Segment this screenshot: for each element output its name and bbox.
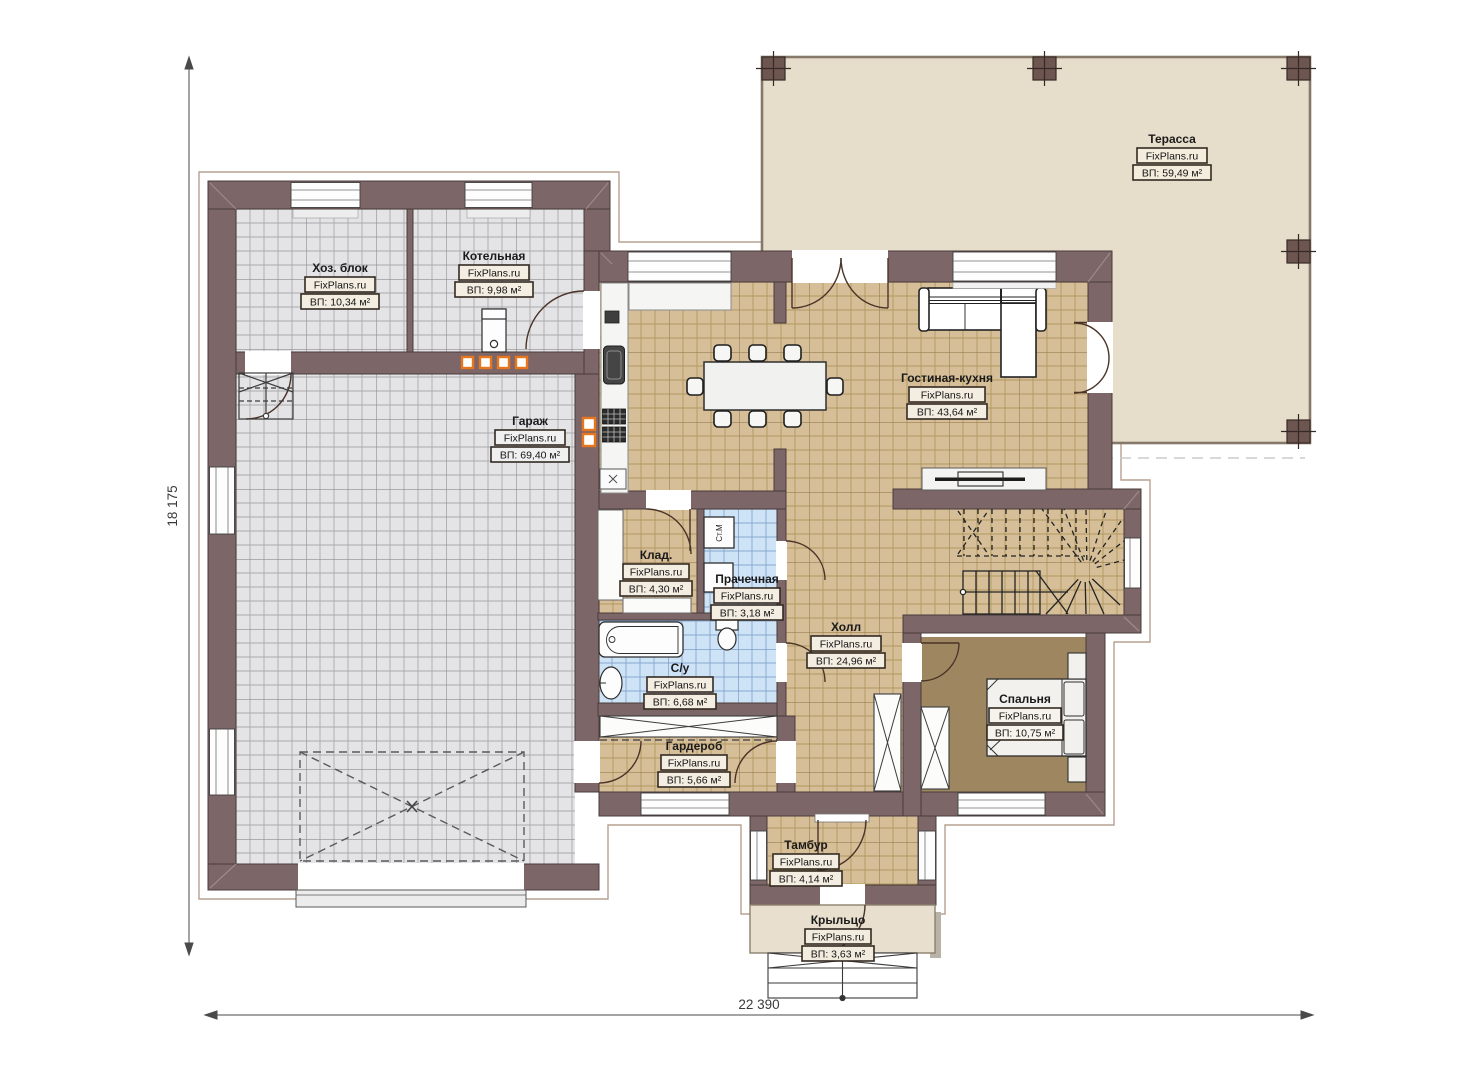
svg-text:Прачечная: Прачечная — [715, 572, 779, 586]
svg-text:ВП: 3,63 м²: ВП: 3,63 м² — [811, 949, 866, 961]
svg-text:ВП: 10,75 м²: ВП: 10,75 м² — [995, 728, 1056, 740]
svg-text:Спальня: Спальня — [999, 692, 1051, 706]
svg-text:Гараж: Гараж — [512, 414, 548, 428]
svg-text:FixPlans.ru: FixPlans.ru — [314, 280, 367, 292]
svg-text:FixPlans.ru: FixPlans.ru — [668, 758, 721, 770]
svg-text:Гостиная-кухня: Гостиная-кухня — [901, 371, 993, 385]
svg-text:ВП: 4,30 м²: ВП: 4,30 м² — [629, 584, 684, 596]
svg-text:FixPlans.ru: FixPlans.ru — [921, 390, 974, 402]
svg-text:ВП: 4,14 м²: ВП: 4,14 м² — [779, 874, 834, 886]
svg-text:18 175: 18 175 — [165, 485, 180, 526]
svg-text:FixPlans.ru: FixPlans.ru — [812, 932, 865, 944]
svg-text:ВП: 6,68 м²: ВП: 6,68 м² — [653, 697, 708, 709]
svg-text:Хоз. блок: Хоз. блок — [312, 261, 369, 275]
svg-text:ВП: 5,66 м²: ВП: 5,66 м² — [667, 775, 722, 787]
svg-text:С/у: С/у — [671, 661, 690, 675]
svg-text:ВП: 10,34 м²: ВП: 10,34 м² — [310, 297, 371, 309]
svg-text:FixPlans.ru: FixPlans.ru — [820, 639, 873, 651]
svg-text:22 390: 22 390 — [738, 997, 779, 1012]
svg-text:FixPlans.ru: FixPlans.ru — [1146, 151, 1199, 163]
svg-text:ВП: 3,18 м²: ВП: 3,18 м² — [720, 608, 775, 620]
svg-text:FixPlans.ru: FixPlans.ru — [630, 567, 683, 579]
svg-text:FixPlans.ru: FixPlans.ru — [721, 591, 774, 603]
svg-text:ВП: 59,49 м²: ВП: 59,49 м² — [1142, 168, 1203, 180]
svg-text:FixPlans.ru: FixPlans.ru — [780, 857, 833, 869]
svg-text:FixPlans.ru: FixPlans.ru — [468, 268, 521, 280]
svg-text:FixPlans.ru: FixPlans.ru — [504, 433, 557, 445]
svg-text:ВП: 24,96 м²: ВП: 24,96 м² — [816, 656, 877, 668]
svg-text:Гардероб: Гардероб — [666, 739, 723, 753]
svg-text:Тамбур: Тамбур — [784, 838, 828, 852]
svg-text:ВП: 69,40 м²: ВП: 69,40 м² — [500, 450, 561, 462]
svg-text:FixPlans.ru: FixPlans.ru — [654, 680, 707, 692]
svg-text:Ст.М: Ст.М — [715, 524, 724, 542]
svg-text:ВП: 43,64 м²: ВП: 43,64 м² — [917, 407, 978, 419]
svg-text:Котельная: Котельная — [463, 249, 526, 263]
svg-text:Холл: Холл — [831, 620, 861, 634]
svg-text:Крыльцо: Крыльцо — [811, 913, 866, 927]
svg-text:FixPlans.ru: FixPlans.ru — [999, 711, 1052, 723]
svg-text:ВП: 9,98 м²: ВП: 9,98 м² — [467, 285, 522, 297]
svg-text:Терасса: Терасса — [1148, 132, 1196, 146]
svg-text:Клад.: Клад. — [640, 548, 673, 562]
